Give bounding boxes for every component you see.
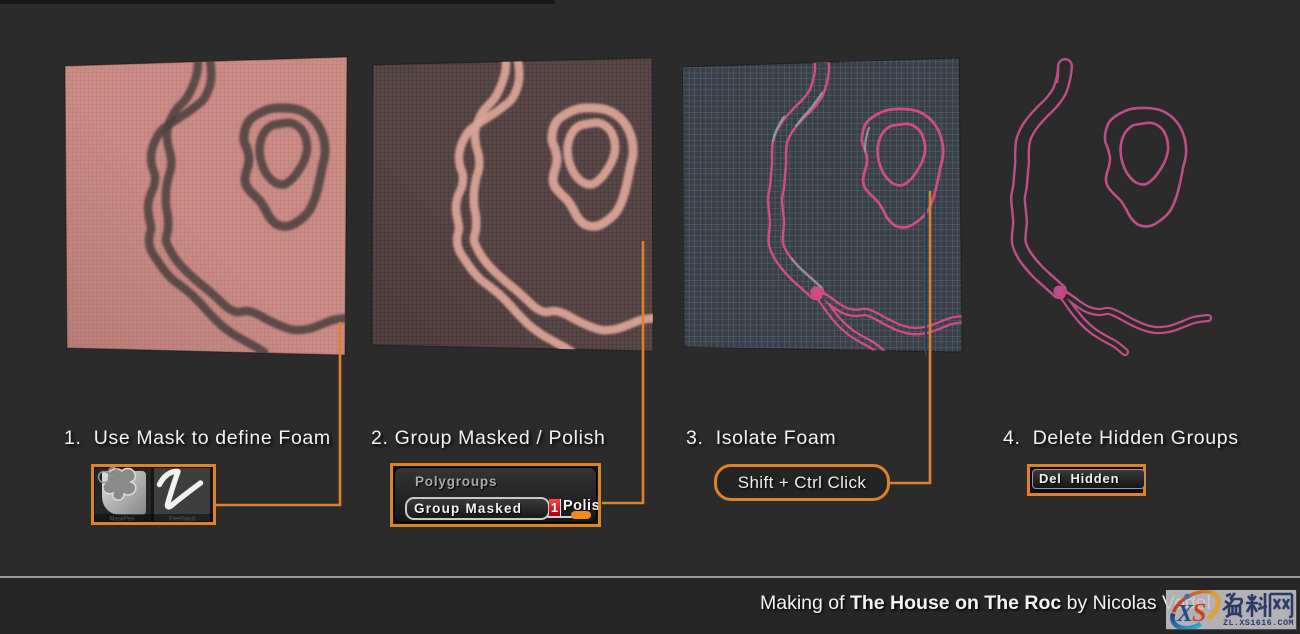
svg-text:ZL.XS1616.COM: ZL.XS1616.COM [1223, 618, 1294, 628]
svg-text:MaskPen: MaskPen [109, 517, 134, 523]
svg-text:S: S [1192, 598, 1206, 627]
svg-text:Freehand: Freehand [169, 517, 195, 523]
